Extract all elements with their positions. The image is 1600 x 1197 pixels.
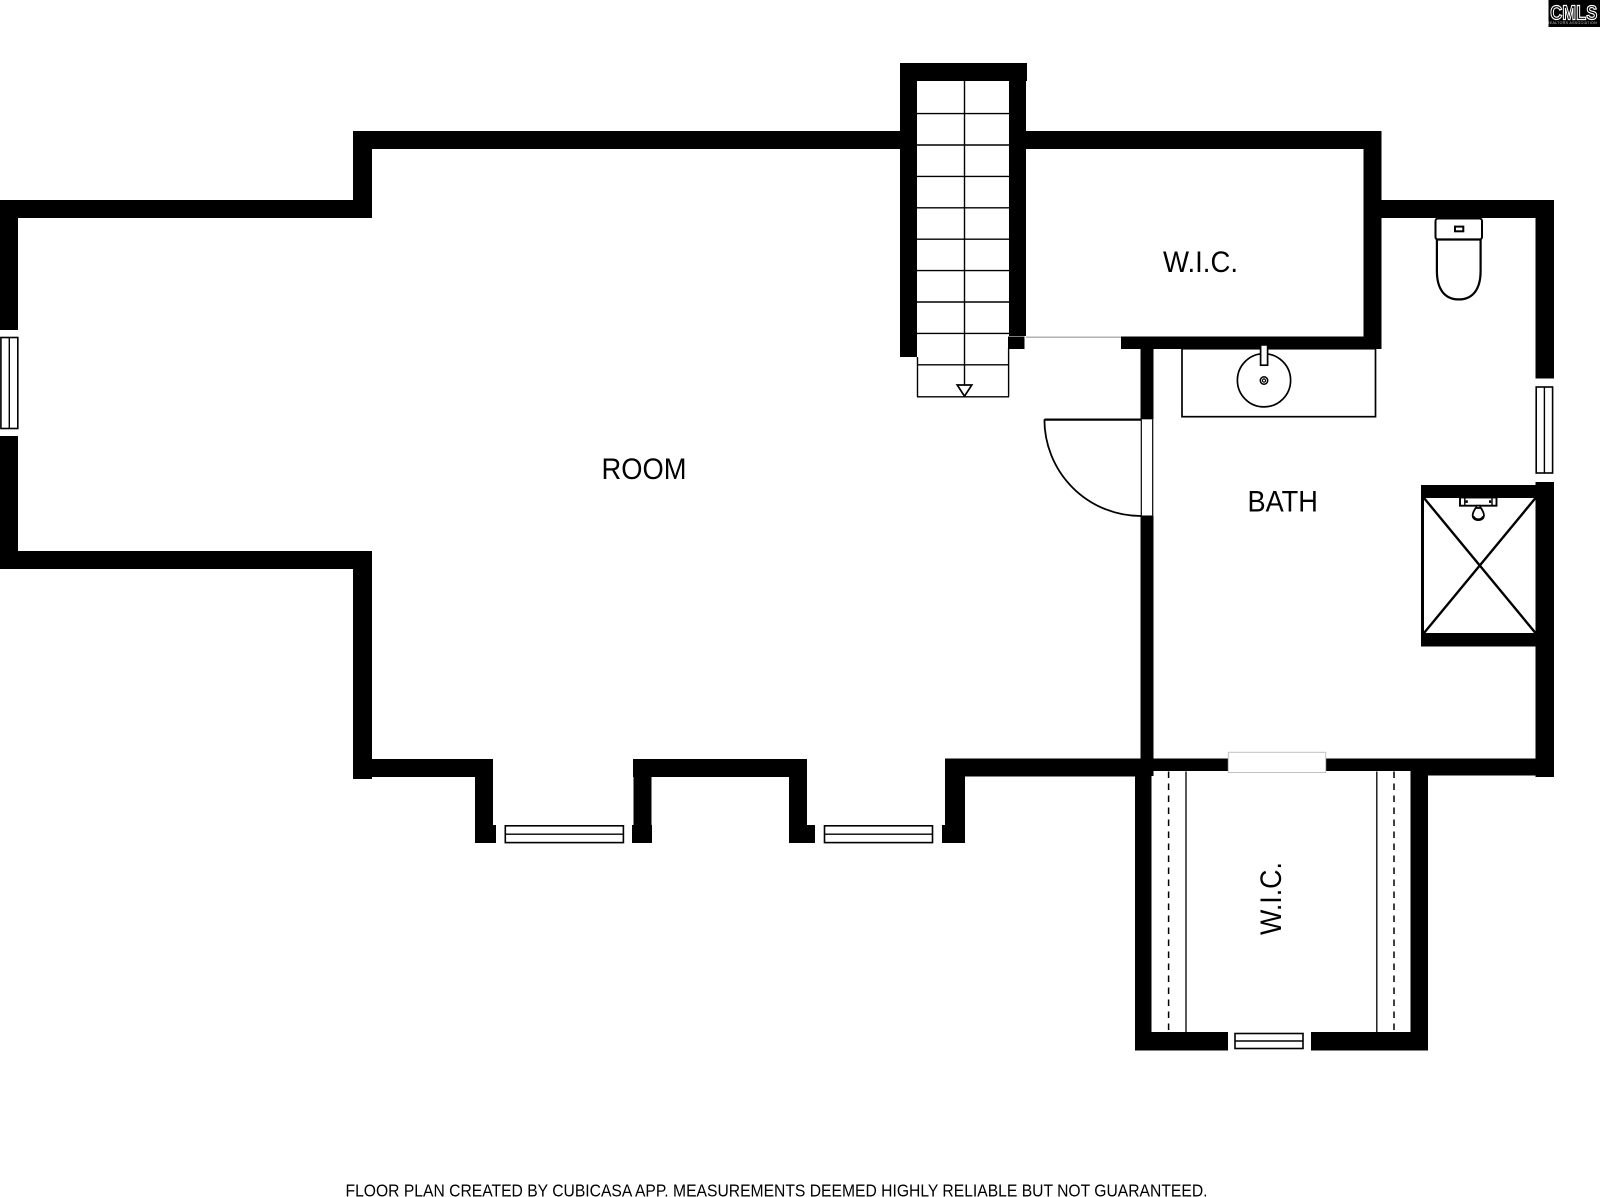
svg-text:FLOOR PLAN CREATED BY CUBICASA: FLOOR PLAN CREATED BY CUBICASA APP. MEAS… — [346, 1181, 1208, 1197]
svg-text:W.I.C.: W.I.C. — [1163, 246, 1238, 279]
svg-text:BATH: BATH — [1247, 485, 1318, 518]
svg-text:ROOM: ROOM — [602, 453, 687, 486]
svg-text:W.I.C.: W.I.C. — [1255, 862, 1288, 935]
svg-text:REALTORS ASSOCIATION: REALTORS ASSOCIATION — [1547, 21, 1597, 25]
